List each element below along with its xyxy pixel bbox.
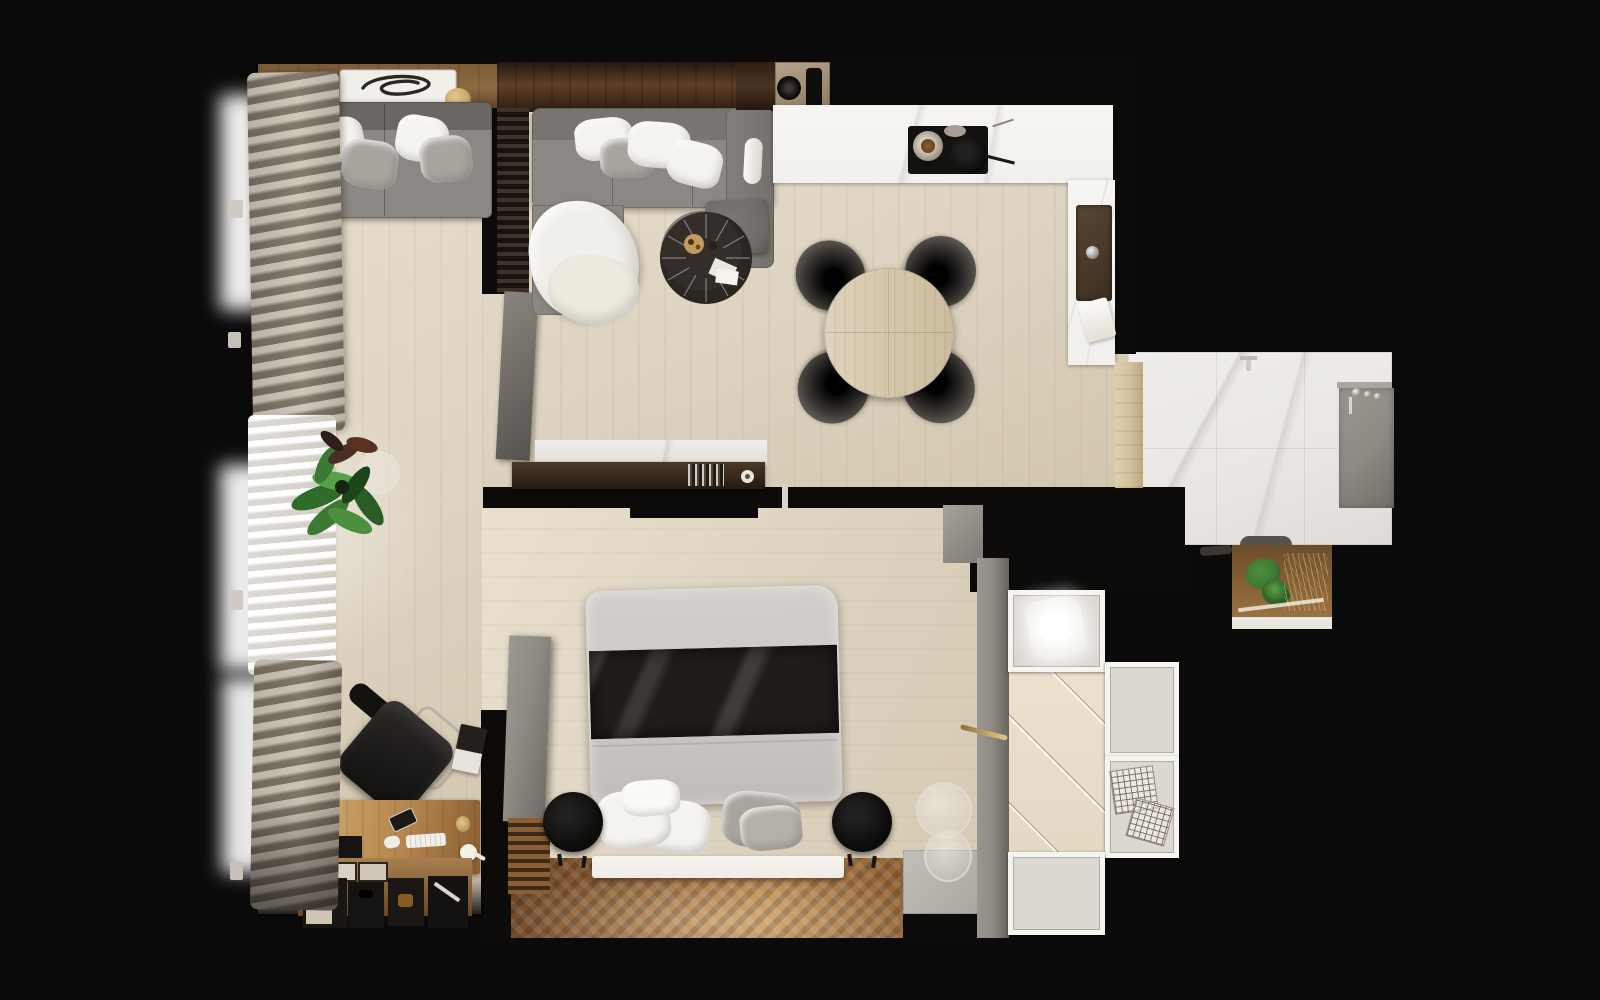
window-frame-bracket-1 [228, 200, 243, 218]
shower-handle [1349, 397, 1352, 414]
wall-tv-partition-step [630, 508, 758, 518]
window-frame-bracket-2 [228, 332, 241, 348]
console-decor-dish [741, 470, 754, 483]
pan-black [950, 137, 988, 174]
shower-knob-2 [1374, 393, 1381, 400]
glass-decor-sphere-2 [924, 830, 972, 882]
book-stack [688, 464, 724, 486]
tv-console [512, 462, 765, 489]
closet-corner-wall [943, 505, 983, 563]
apartment-floor-plan [0, 0, 1600, 1000]
storage-box-3-inner [398, 894, 413, 907]
window-frame-bracket-3 [230, 590, 243, 610]
pouf-right [832, 792, 892, 852]
coffee-machine [777, 76, 801, 100]
shower-knob-1 [1364, 391, 1371, 398]
coffee-cabinet-wood [736, 62, 776, 110]
bed-pillow-gray-2 [738, 803, 804, 853]
slat-partition [497, 108, 529, 294]
bathroom-door-wood [1115, 362, 1143, 488]
floor-faucet-bar [1240, 356, 1257, 360]
storage-box-2 [348, 882, 384, 928]
pan-steel-food [921, 139, 935, 153]
planter-niche [1232, 545, 1332, 629]
coffee-table [656, 208, 756, 308]
bath-towel-rolled [1200, 545, 1233, 556]
shower-floor [1337, 388, 1394, 508]
curtain-lower-taupe [250, 659, 342, 910]
bed-pillow-white-2 [621, 778, 681, 818]
small-appliance [806, 68, 822, 108]
closet-wall-gray [977, 558, 1009, 938]
picture-frame-2 [358, 862, 388, 882]
pan-small-top [944, 125, 966, 137]
bench-pillow-gray-2 [418, 133, 475, 184]
shower-head [1352, 388, 1361, 397]
wardrobe-panel [503, 635, 551, 822]
desk-gold-cup [456, 816, 470, 832]
dining-table [824, 268, 954, 398]
dining-table-seam-h [826, 332, 952, 333]
bed-runner [589, 645, 839, 739]
curtain-upper-taupe [247, 71, 345, 433]
rolled-towel [743, 138, 763, 185]
closet-cabinet-right-upper [1105, 662, 1179, 758]
bed-base [592, 856, 844, 878]
pouf-left [543, 792, 603, 852]
niche-sill [1232, 617, 1332, 629]
dining-table-seam-v [888, 270, 889, 396]
closet-cabinet-bottom [1008, 852, 1105, 935]
wood-beam-top [497, 62, 775, 112]
decor-tray [338, 68, 458, 106]
door-edge-white [782, 484, 788, 516]
wall-kitchen-top [828, 56, 1134, 106]
sink-faucet [1086, 246, 1099, 259]
keyboard [406, 833, 447, 849]
wall-tv-partition [483, 487, 970, 508]
window-frame-bracket-4 [230, 862, 243, 880]
closet-cabinet-cloth [1023, 594, 1089, 663]
storage-box-2-handle [359, 890, 373, 898]
potted-plant [280, 425, 415, 565]
